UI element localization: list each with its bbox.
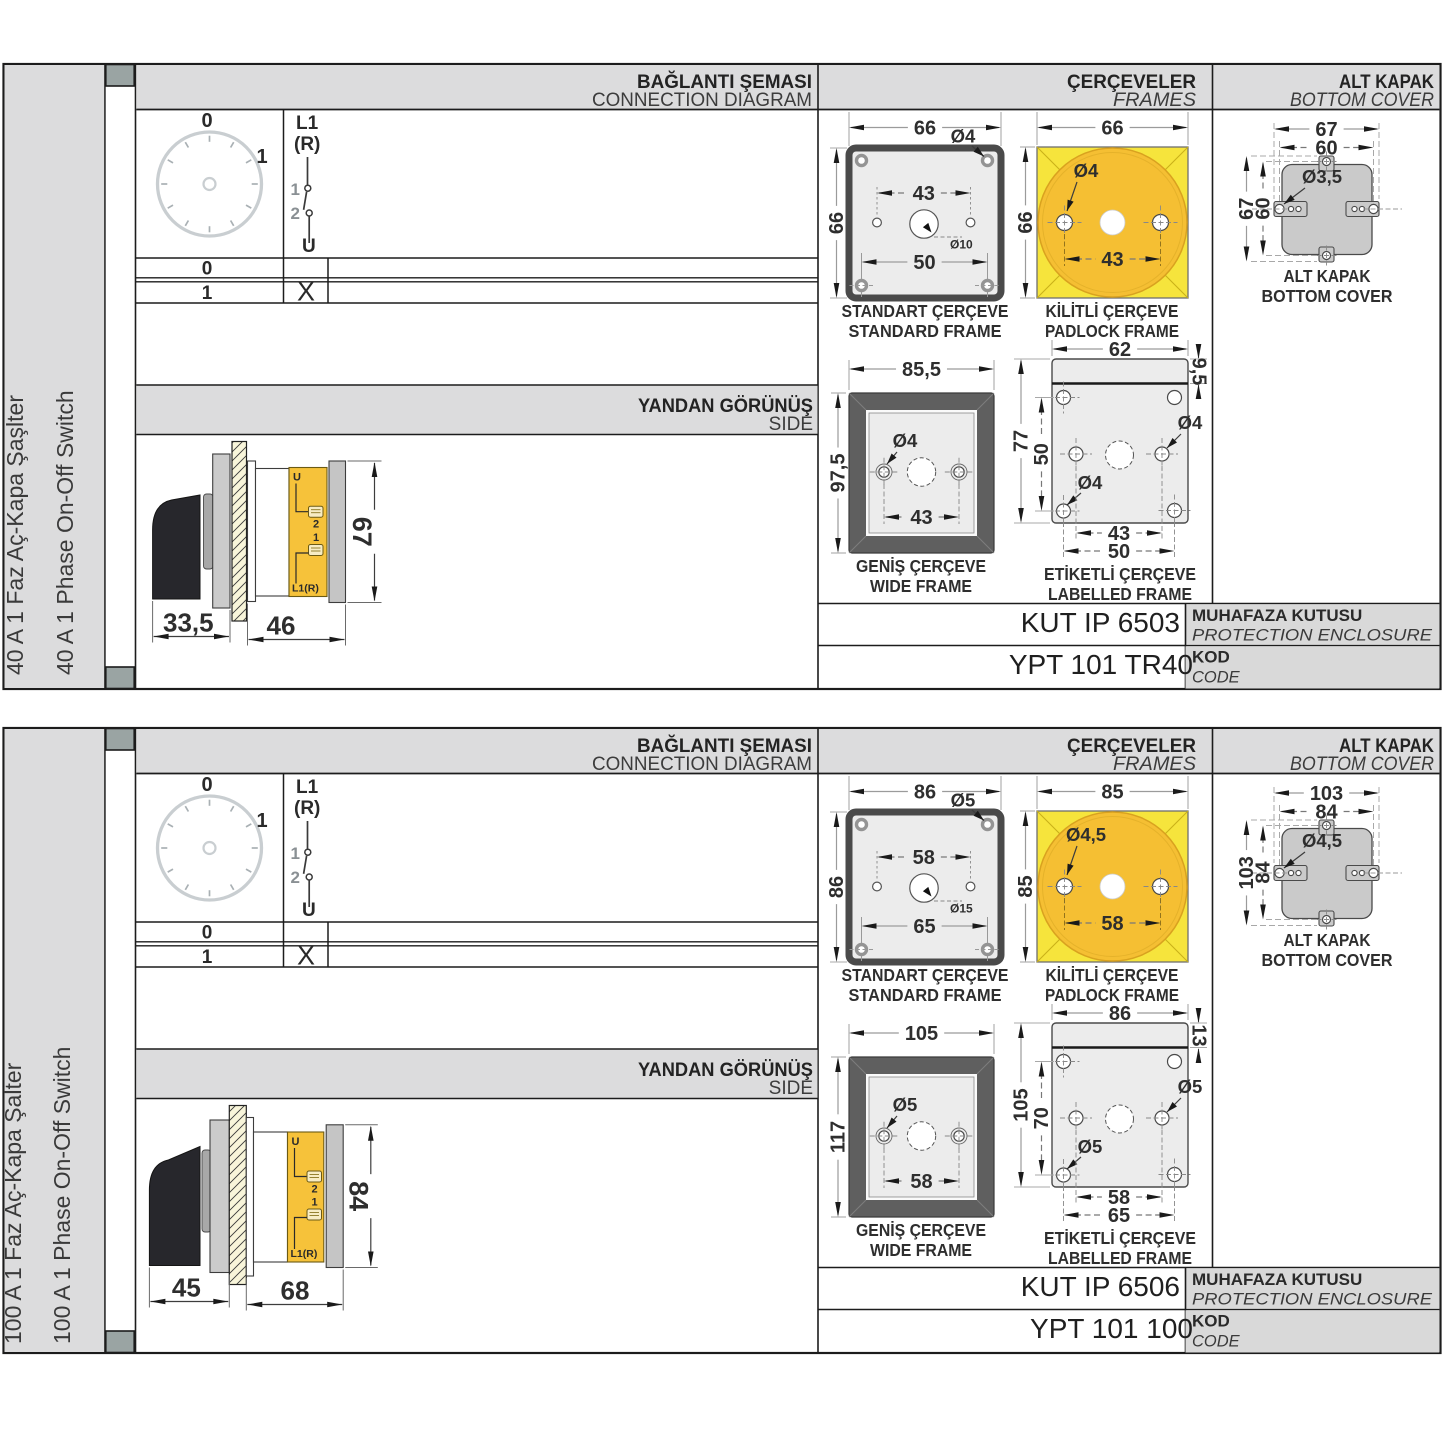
svg-text:65: 65: [1108, 1205, 1130, 1227]
svg-text:65: 65: [913, 916, 935, 938]
svg-text:YPT 101 100: YPT 101 100: [1030, 1313, 1193, 1344]
svg-text:9,5: 9,5: [1188, 358, 1210, 386]
svg-text:0: 0: [202, 259, 213, 280]
svg-text:66: 66: [1015, 211, 1037, 233]
svg-text:U: U: [302, 900, 316, 921]
svg-text:CODE: CODE: [1192, 1333, 1241, 1351]
svg-text:1: 1: [256, 810, 267, 832]
svg-text:84: 84: [1253, 861, 1275, 884]
svg-text:2: 2: [291, 204, 300, 223]
svg-text:(R): (R): [294, 134, 320, 155]
svg-text:GENİŞ ÇERÇEVE: GENİŞ ÇERÇEVE: [856, 556, 986, 576]
svg-text:GENİŞ ÇERÇEVE: GENİŞ ÇERÇEVE: [856, 1220, 986, 1240]
svg-text:ALT KAPAK: ALT KAPAK: [1284, 930, 1371, 950]
svg-text:43: 43: [1101, 249, 1123, 271]
svg-text:Ø4: Ø4: [1078, 472, 1103, 493]
svg-text:58: 58: [910, 1171, 932, 1193]
svg-text:100 A 1 Phase On-Off Switch: 100 A 1 Phase On-Off Switch: [49, 1047, 75, 1344]
svg-text:Ø4,5: Ø4,5: [1302, 830, 1342, 851]
svg-text:STANDARD FRAME: STANDARD FRAME: [849, 321, 1002, 341]
svg-text:1: 1: [202, 947, 213, 968]
svg-text:CONNECTION DIAGRAM: CONNECTION DIAGRAM: [592, 754, 812, 775]
svg-text:KUT IP 6506: KUT IP 6506: [1021, 1271, 1180, 1302]
svg-text:46: 46: [267, 611, 296, 641]
svg-text:85,5: 85,5: [902, 359, 941, 381]
svg-text:ETİKETLİ ÇERÇEVE: ETİKETLİ ÇERÇEVE: [1044, 564, 1196, 584]
svg-text:PROTECTION ENCLOSURE: PROTECTION ENCLOSURE: [1192, 1291, 1433, 1309]
svg-text:117: 117: [828, 1121, 850, 1153]
svg-text:Ø5: Ø5: [951, 790, 976, 811]
svg-text:KOD: KOD: [1192, 1312, 1230, 1331]
svg-text:2: 2: [311, 1184, 317, 1196]
svg-text:CONNECTION DIAGRAM: CONNECTION DIAGRAM: [592, 90, 812, 111]
svg-text:50: 50: [1031, 443, 1053, 465]
svg-text:SIDE: SIDE: [769, 414, 813, 435]
svg-text:ALT KAPAK: ALT KAPAK: [1284, 266, 1371, 286]
svg-text:60: 60: [1253, 197, 1275, 219]
svg-text:100 A 1 Faz Aç-Kapa Şalter: 100 A 1 Faz Aç-Kapa Şalter: [0, 1062, 26, 1344]
svg-text:PADLOCK FRAME: PADLOCK FRAME: [1045, 321, 1179, 341]
svg-text:MUHAFAZA KUTUSU: MUHAFAZA KUTUSU: [1192, 606, 1362, 625]
svg-text:40 A 1 Faz Aç-Kapa Şaşlter: 40 A 1 Faz Aç-Kapa Şaşlter: [2, 395, 28, 675]
svg-text:LABELLED FRAME: LABELLED FRAME: [1048, 1248, 1192, 1268]
svg-text:66: 66: [826, 212, 848, 234]
svg-text:1: 1: [256, 146, 267, 168]
svg-text:STANDARD FRAME: STANDARD FRAME: [849, 985, 1002, 1005]
svg-text:L1: L1: [296, 113, 319, 134]
svg-text:1: 1: [313, 532, 319, 544]
svg-text:BOTTOM COVER: BOTTOM COVER: [1262, 286, 1393, 306]
svg-text:Ø5: Ø5: [893, 1094, 918, 1115]
svg-text:BOTTOM COVER: BOTTOM COVER: [1290, 754, 1434, 775]
svg-text:77: 77: [1011, 430, 1033, 452]
svg-text:58: 58: [1101, 913, 1123, 935]
svg-text:43: 43: [913, 183, 935, 205]
svg-text:MUHAFAZA KUTUSU: MUHAFAZA KUTUSU: [1192, 1270, 1362, 1289]
svg-text:L1: L1: [296, 777, 319, 798]
svg-text:2: 2: [291, 868, 300, 887]
svg-text:68: 68: [281, 1276, 310, 1306]
svg-text:BOTTOM COVER: BOTTOM COVER: [1290, 90, 1434, 111]
svg-text:0: 0: [201, 774, 212, 796]
svg-text:Ø10: Ø10: [950, 237, 973, 251]
svg-text:105: 105: [1011, 1088, 1033, 1121]
svg-text:X: X: [297, 277, 315, 307]
svg-text:WIDE FRAME: WIDE FRAME: [870, 576, 972, 596]
svg-text:X: X: [297, 941, 315, 971]
svg-text:105: 105: [905, 1023, 938, 1045]
svg-text:STANDART ÇERÇEVE: STANDART ÇERÇEVE: [842, 301, 1009, 321]
svg-text:L1(R): L1(R): [292, 583, 319, 595]
svg-text:LABELLED FRAME: LABELLED FRAME: [1048, 584, 1192, 604]
svg-text:66: 66: [1101, 118, 1123, 140]
svg-text:1: 1: [202, 283, 213, 304]
svg-text:Ø15: Ø15: [950, 901, 973, 915]
svg-text:85: 85: [1101, 782, 1123, 804]
svg-text:86: 86: [1109, 1003, 1131, 1025]
svg-text:67: 67: [347, 517, 377, 547]
svg-text:85: 85: [1015, 875, 1037, 897]
svg-text:50: 50: [913, 252, 935, 274]
svg-text:Ø4,5: Ø4,5: [1066, 824, 1106, 845]
svg-text:L1(R): L1(R): [291, 1248, 318, 1260]
svg-text:FRAMES: FRAMES: [1113, 754, 1196, 775]
svg-text:Ø5: Ø5: [1178, 1076, 1203, 1097]
svg-text:58: 58: [913, 847, 935, 869]
svg-text:86: 86: [826, 876, 848, 898]
svg-text:1: 1: [291, 180, 300, 199]
svg-text:2: 2: [313, 519, 319, 531]
svg-text:KİLİTLİ ÇERÇEVE: KİLİTLİ ÇERÇEVE: [1046, 965, 1179, 985]
svg-text:PADLOCK FRAME: PADLOCK FRAME: [1045, 985, 1179, 1005]
svg-text:1: 1: [291, 844, 300, 863]
svg-text:45: 45: [172, 1273, 201, 1303]
svg-text:U: U: [302, 236, 316, 257]
svg-text:FRAMES: FRAMES: [1113, 90, 1196, 111]
svg-text:KOD: KOD: [1192, 648, 1230, 667]
svg-text:Ø5: Ø5: [1078, 1136, 1103, 1157]
svg-text:84: 84: [343, 1181, 373, 1211]
svg-text:PROTECTION ENCLOSURE: PROTECTION ENCLOSURE: [1192, 627, 1433, 645]
svg-text:(R): (R): [294, 798, 320, 819]
svg-text:SIDE: SIDE: [769, 1078, 813, 1099]
svg-text:Ø4: Ø4: [1178, 412, 1203, 433]
svg-text:0: 0: [202, 923, 213, 944]
svg-text:1: 1: [311, 1197, 317, 1209]
svg-text:KİLİTLİ ÇERÇEVE: KİLİTLİ ÇERÇEVE: [1046, 301, 1179, 321]
svg-text:ETİKETLİ ÇERÇEVE: ETİKETLİ ÇERÇEVE: [1044, 1228, 1196, 1248]
svg-text:Ø4: Ø4: [1074, 160, 1099, 181]
svg-text:Ø3,5: Ø3,5: [1302, 166, 1342, 187]
svg-text:40 A 1 Phase On-Off Switch: 40 A 1 Phase On-Off Switch: [52, 390, 78, 675]
svg-text:84: 84: [1315, 802, 1338, 824]
svg-text:66: 66: [914, 118, 936, 140]
svg-text:60: 60: [1315, 138, 1337, 160]
svg-text:YPT 101 TR40: YPT 101 TR40: [1009, 649, 1193, 680]
svg-text:Ø4: Ø4: [893, 430, 918, 451]
svg-text:U: U: [293, 472, 301, 484]
svg-text:86: 86: [914, 782, 936, 804]
svg-text:97,5: 97,5: [828, 454, 850, 493]
svg-text:50: 50: [1108, 541, 1130, 563]
svg-text:STANDART ÇERÇEVE: STANDART ÇERÇEVE: [842, 965, 1009, 985]
svg-text:KUT IP 6503: KUT IP 6503: [1021, 607, 1180, 638]
svg-text:0: 0: [201, 110, 212, 132]
svg-text:33,5: 33,5: [163, 608, 214, 638]
svg-text:43: 43: [910, 507, 932, 529]
svg-text:Ø4: Ø4: [951, 126, 976, 147]
svg-text:BOTTOM COVER: BOTTOM COVER: [1262, 950, 1393, 970]
svg-text:WIDE FRAME: WIDE FRAME: [870, 1240, 972, 1260]
svg-text:13: 13: [1188, 1024, 1210, 1046]
svg-text:62: 62: [1109, 339, 1131, 361]
svg-text:U: U: [292, 1136, 300, 1148]
svg-text:CODE: CODE: [1192, 669, 1241, 687]
svg-text:70: 70: [1031, 1107, 1053, 1129]
